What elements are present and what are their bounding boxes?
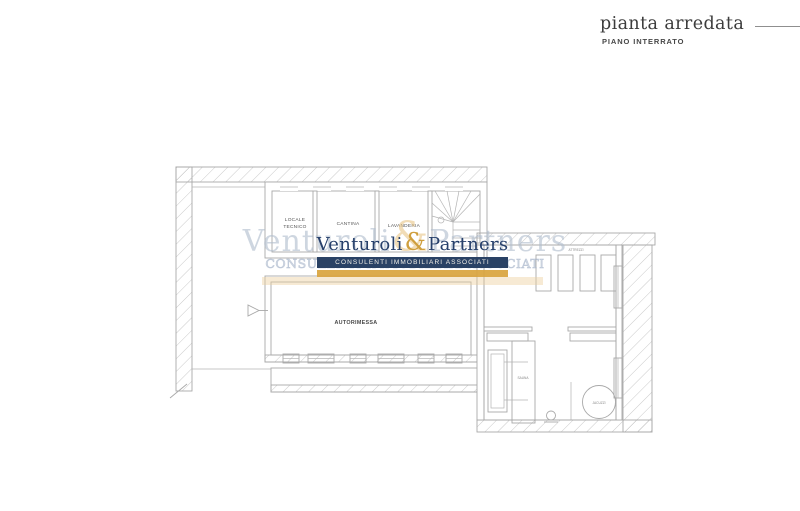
logo-name-left: Venturoli — [317, 234, 403, 255]
title-block: pianta arredata PIANO INTERRATO — [600, 14, 796, 46]
room-label-locale-tecnico: LOCALE — [285, 217, 305, 223]
title-rule — [755, 26, 800, 27]
label-jacuzzi: JACUZZI — [592, 401, 605, 405]
equipment-cabinets — [536, 255, 616, 291]
label-attrezzi: ATTREZZI — [569, 248, 584, 252]
garage: AUTORIMESSA — [265, 276, 477, 363]
sauna-cabinet: SAUNA — [504, 341, 535, 423]
logo-gold-bar — [317, 270, 508, 277]
logo-tagline-bar: CONSULENTI IMMOBILIARI ASSOCIATI — [317, 257, 508, 268]
room-label-cantina: CANTINA — [337, 221, 360, 227]
logo-name-right: Partners — [428, 234, 508, 255]
room-label-autorimessa: AUTORIMESSA — [334, 320, 377, 326]
round-tub: JACUZZI — [583, 386, 616, 419]
logo-ampersand-icon: & — [405, 233, 426, 251]
page-title: pianta arredata — [600, 14, 744, 34]
watermark-gold-band — [262, 277, 543, 285]
page-subtitle: PIANO INTERRATO — [602, 37, 796, 46]
room-label-locale-tecnico-2: TECNICO — [283, 224, 306, 230]
label-sauna: SAUNA — [518, 376, 530, 380]
trench — [192, 368, 478, 392]
page: LOCALE TECNICO CANTINA LAVANDERIA — [0, 0, 800, 511]
watermark-logo: Venturoli & Partners CONSULENTI IMMOBILI… — [312, 233, 513, 277]
